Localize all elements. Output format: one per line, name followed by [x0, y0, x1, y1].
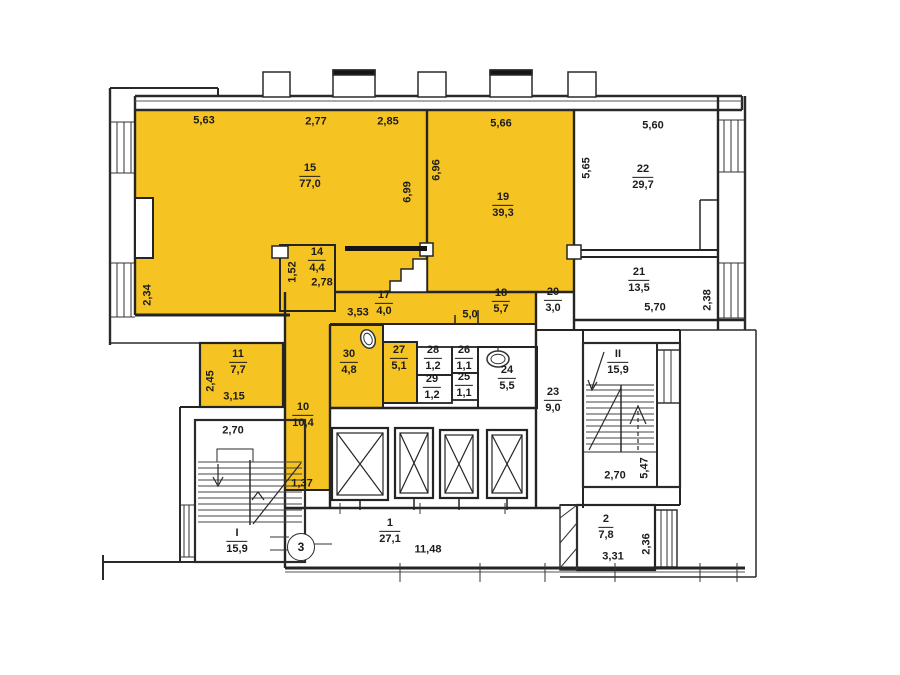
- room-number: I: [226, 527, 247, 542]
- dim-5-63: 5,63: [193, 116, 214, 127]
- room-label-14: 144,4: [308, 246, 326, 274]
- room-number: 15: [299, 162, 320, 177]
- room-label-18: 185,7: [492, 287, 510, 315]
- dim-2-34: 2,34: [143, 284, 154, 305]
- room-number: 29: [423, 373, 441, 388]
- room-label-19: 1939,3: [492, 191, 513, 219]
- room-area: 15,9: [226, 542, 247, 556]
- room-label-1: 127,1: [379, 517, 400, 545]
- dim-1-52: 1,52: [288, 261, 299, 282]
- room-number: 30: [340, 348, 358, 363]
- dim-5-70: 5,70: [644, 303, 665, 314]
- dim-5-0: 5,0: [462, 310, 477, 321]
- room-area: 10,4: [292, 416, 313, 430]
- room-number: 2: [598, 513, 613, 528]
- room-number: 11: [229, 348, 247, 363]
- dim-2-78: 2,78: [311, 278, 332, 289]
- dim-2-70-left: 2,70: [222, 426, 243, 437]
- dim-2-45: 2,45: [206, 370, 217, 391]
- room-number: 18: [492, 287, 510, 302]
- dim-2-85: 2,85: [377, 117, 398, 128]
- dim-2-70-right: 2,70: [604, 471, 625, 482]
- floor-plan-canvas: 1577,0 1939,3 2229,7 144,4 174,0 185,7 2…: [0, 0, 900, 675]
- room-number: 26: [455, 344, 473, 359]
- room-number: II: [607, 348, 628, 363]
- room-number: 17: [375, 289, 393, 304]
- dim-5-65: 5,65: [582, 157, 593, 178]
- room-area: 1,2: [423, 388, 441, 402]
- dim-11-48: 11,48: [415, 545, 442, 556]
- room-number: 1: [379, 517, 400, 532]
- room-label-22: 2229,7: [632, 163, 653, 191]
- dim-6-99: 6,99: [403, 181, 414, 202]
- dim-3-53: 3,53: [347, 308, 368, 319]
- room-area: 29,7: [632, 178, 653, 192]
- room-number: 21: [628, 266, 649, 281]
- section-marker-number: 3: [298, 540, 305, 554]
- room-label-17: 174,0: [375, 289, 393, 317]
- room-label-25: 251,1: [455, 371, 473, 399]
- room-number: 22: [632, 163, 653, 178]
- room-number: 23: [544, 386, 562, 401]
- room-area: 77,0: [299, 177, 320, 191]
- room-label-26: 261,1: [455, 344, 473, 372]
- room-number: 14: [308, 246, 326, 261]
- room-area: 1,2: [424, 359, 442, 373]
- dim-1-37: 1,37: [291, 479, 312, 490]
- dim-2-36: 2,36: [642, 533, 653, 554]
- floor-plan-drawing: [0, 0, 900, 675]
- dim-2-38: 2,38: [703, 289, 714, 310]
- dim-2-77: 2,77: [305, 117, 326, 128]
- room-number: 19: [492, 191, 513, 206]
- room-label-stair-II: II15,9: [607, 348, 628, 376]
- room-number: 24: [498, 364, 516, 379]
- room-label-21: 2113,5: [628, 266, 649, 294]
- room-label-30: 304,8: [340, 348, 358, 376]
- dim-3-15: 3,15: [223, 392, 244, 403]
- room-area: 13,5: [628, 281, 649, 295]
- dim-5-60: 5,60: [642, 121, 663, 132]
- facade-pilasters: [263, 70, 596, 97]
- room-label-2: 27,8: [598, 513, 613, 541]
- room-area: 15,9: [607, 363, 628, 377]
- room-label-15: 1577,0: [299, 162, 320, 190]
- dim-5-47: 5,47: [640, 457, 651, 478]
- room-label-11: 117,7: [229, 348, 247, 376]
- room-area: 9,0: [544, 401, 562, 415]
- room-area: 27,1: [379, 532, 400, 546]
- room-label-10: 1010,4: [292, 401, 313, 429]
- room-label-stair-I: I15,9: [226, 527, 247, 555]
- elevator-shafts: [332, 428, 527, 510]
- room-number: 10: [292, 401, 313, 416]
- room-area: 5,5: [498, 379, 516, 393]
- section-marker-3: 3: [287, 533, 315, 561]
- room-number: 28: [424, 344, 442, 359]
- room-area: 4,8: [340, 363, 358, 377]
- room-area: 7,8: [598, 528, 613, 542]
- room-label-20: 203,0: [544, 286, 562, 314]
- room-label-23: 239,0: [544, 386, 562, 414]
- room-area: 4,0: [375, 304, 393, 318]
- dim-5-66: 5,66: [490, 119, 511, 130]
- dim-3-31: 3,31: [602, 552, 623, 563]
- room-area: 5,7: [492, 302, 510, 316]
- room-label-24: 245,5: [498, 364, 516, 392]
- room-area: 3,0: [544, 301, 562, 315]
- room-area: 39,3: [492, 206, 513, 220]
- room-area: 1,1: [455, 386, 473, 400]
- room-area: 4,4: [308, 261, 326, 275]
- staircase-right: [583, 343, 680, 487]
- room-label-29: 291,2: [423, 373, 441, 401]
- room-number: 27: [390, 344, 408, 359]
- room-number: 25: [455, 371, 473, 386]
- room-number: 20: [544, 286, 562, 301]
- room-area: 7,7: [229, 363, 247, 377]
- room-area: 5,1: [390, 359, 408, 373]
- room-label-28: 281,2: [424, 344, 442, 372]
- dim-6-96: 6,96: [432, 159, 443, 180]
- room-label-27: 275,1: [390, 344, 408, 372]
